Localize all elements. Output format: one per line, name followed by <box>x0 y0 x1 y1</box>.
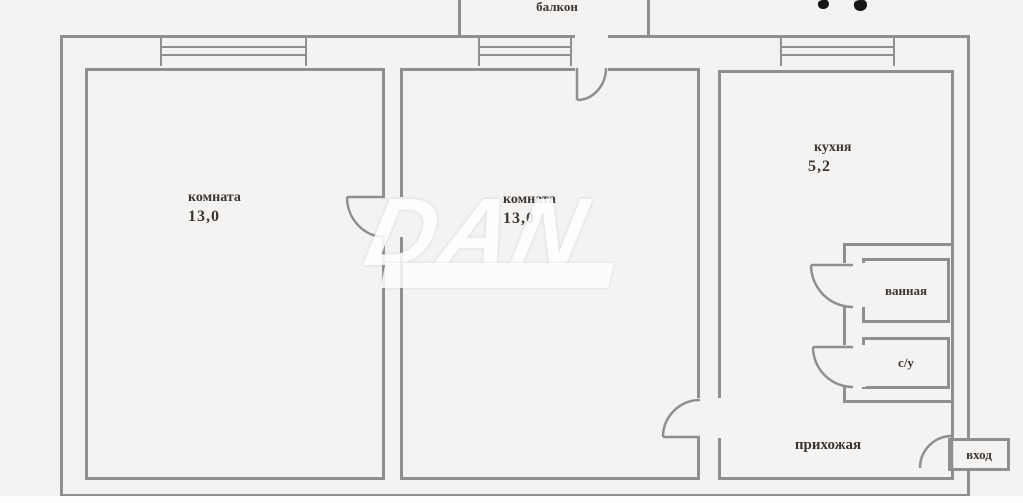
kitchen-name: кухня <box>808 139 852 157</box>
entrance-door-icon <box>920 436 952 468</box>
floor-plan: балкон ванная с/у вход <box>0 0 1023 503</box>
room-mid-door-icon <box>663 400 700 437</box>
room-left-area: 13,0 <box>188 207 241 227</box>
balcony-label: балкон <box>512 0 602 15</box>
balcony-label-text: балкон <box>536 0 578 14</box>
room-left-name: комната <box>188 189 241 207</box>
kitchen-label: кухня 5,2 <box>808 139 852 177</box>
hallway-label-text: прихожая <box>795 437 861 453</box>
wc-door-icon <box>813 347 853 387</box>
room-left-label: комната 13,0 <box>188 189 241 227</box>
watermark-bar <box>380 263 613 288</box>
bathroom-door-icon <box>811 265 853 307</box>
kitchen-area: 5,2 <box>808 157 852 177</box>
page-edge <box>0 496 1023 503</box>
balcony-door-icon <box>577 68 606 100</box>
hallway-label: прихожая <box>776 436 880 455</box>
